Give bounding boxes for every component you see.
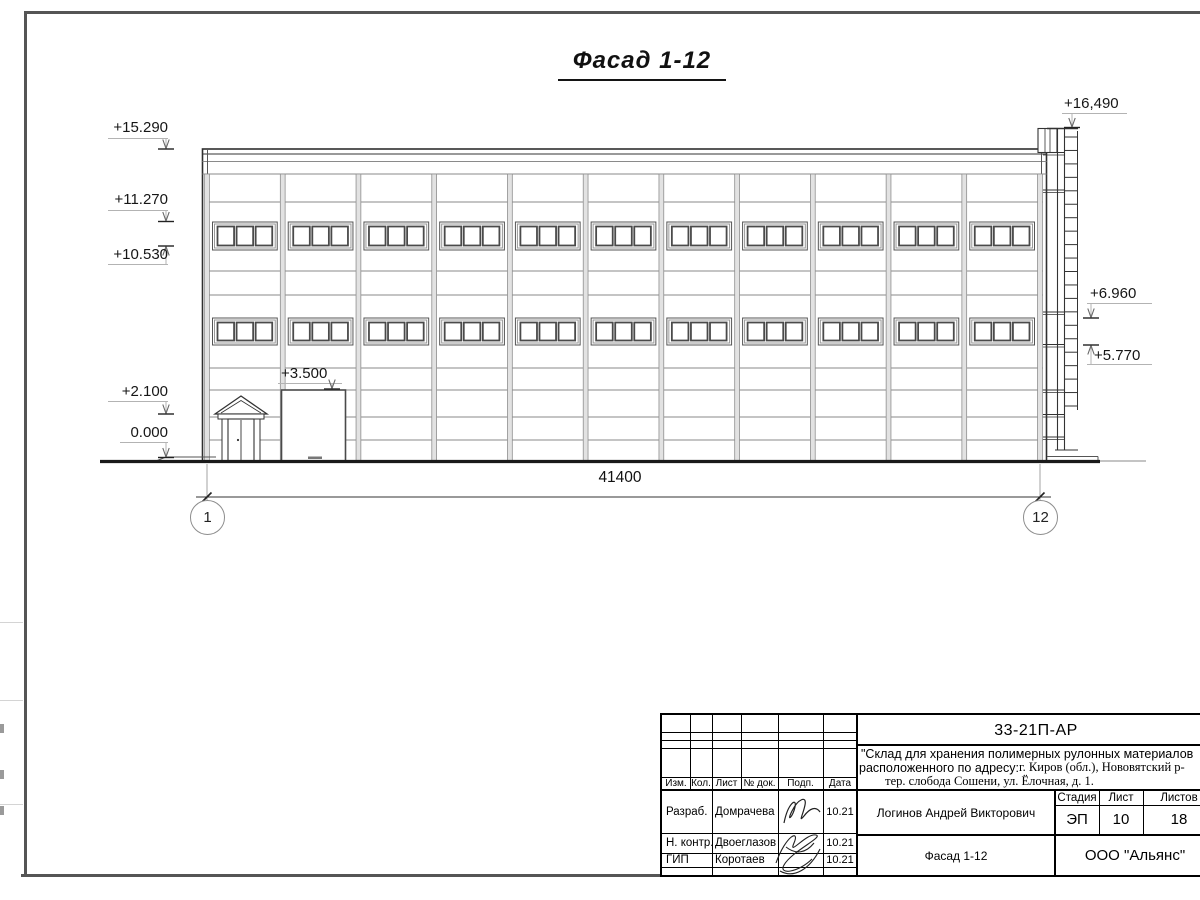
tb-name-razrab: Домрачева	[715, 790, 778, 833]
signature-razrab	[780, 793, 824, 831]
tb-company: ООО "Альянс"	[1055, 836, 1200, 875]
elevation-mark-label: +10.530	[88, 247, 168, 262]
tb-project-line2-serif: г. Киров (обл.), Нововятский р-	[1019, 760, 1185, 775]
elevation-mark-label: +3.500	[281, 366, 327, 381]
tb-chief-name: Логинов Андрей Викторович	[857, 791, 1055, 834]
tb-col-data: Дата	[823, 777, 857, 790]
elevation-mark-label: +2.100	[88, 384, 168, 399]
tb-stage-label: Стадия	[1055, 790, 1099, 805]
tb-date-gip: 10.21	[823, 853, 857, 867]
dimension-value-label: 41400	[588, 469, 652, 487]
elevation-mark-label: +6.960	[1090, 286, 1136, 301]
tb-project-line2: расположенного по адресу: г. Киров (обл.…	[859, 760, 1200, 775]
tb-date-nkontr: 10.21	[823, 833, 857, 853]
tb-sheet-label: Лист	[1099, 790, 1143, 805]
grid-bubble-12: 12	[1023, 500, 1058, 535]
tb-drawing-name: Фасад 1-12	[857, 836, 1055, 875]
grid-bubble-1: 1	[190, 500, 225, 535]
tb-col-ndok: № док.	[741, 777, 778, 790]
tb-name-nkontr: Двоеглазов	[715, 833, 778, 853]
elevation-mark-label: +15.290	[88, 120, 168, 135]
grid-bubble-1-label: 1	[203, 509, 211, 526]
tb-col-list: Лист	[712, 777, 741, 790]
elevation-mark-label: +5.770	[1094, 348, 1140, 363]
tb-sheets-value: 18	[1143, 805, 1200, 834]
grid-bubble-12-label: 12	[1032, 509, 1049, 526]
tb-doc-code: 33-21П-АР	[857, 717, 1200, 744]
tb-project-line2-sans: расположенного по адресу:	[859, 761, 1019, 775]
tb-stage-value: ЭП	[1055, 805, 1099, 834]
tb-role-razrab: Разраб.	[666, 790, 712, 833]
gate-door	[282, 390, 346, 462]
tb-col-podp: Подп.	[778, 777, 823, 790]
blueprint-sheet: { "page": { "title": "Фасад 1-12" }, "ma…	[0, 0, 1200, 900]
elevation-mark-label: +16,490	[1064, 96, 1119, 111]
tb-project-line3: тер. слобода Сошени, ул. Ёлочная, д. 1.	[857, 774, 1122, 789]
signature-nkontr-gip	[772, 827, 826, 877]
tb-name-gip: Коротаев	[715, 853, 778, 867]
tb-role-nkontr: Н. контр.	[666, 833, 712, 853]
elevation-mark-label: 0.000	[88, 425, 168, 440]
tb-col-izm: Изм.	[662, 777, 690, 790]
tb-col-kol: Кол.	[690, 777, 712, 790]
tb-sheet-value: 10	[1099, 805, 1143, 834]
title-block: Изм. Кол. Лист № док. Подп. Дата Разраб.…	[660, 713, 1200, 877]
tb-project-line1: "Склад для хранения полимерных рулонных …	[861, 746, 1200, 761]
tb-date-razrab: 10.21	[823, 790, 857, 833]
elevation-mark-label: +11.270	[88, 192, 168, 207]
tb-role-gip: ГИП	[666, 853, 712, 867]
tb-sheets-label: Листов	[1143, 790, 1200, 805]
drawing-title: Фасад 1-12	[558, 47, 726, 81]
